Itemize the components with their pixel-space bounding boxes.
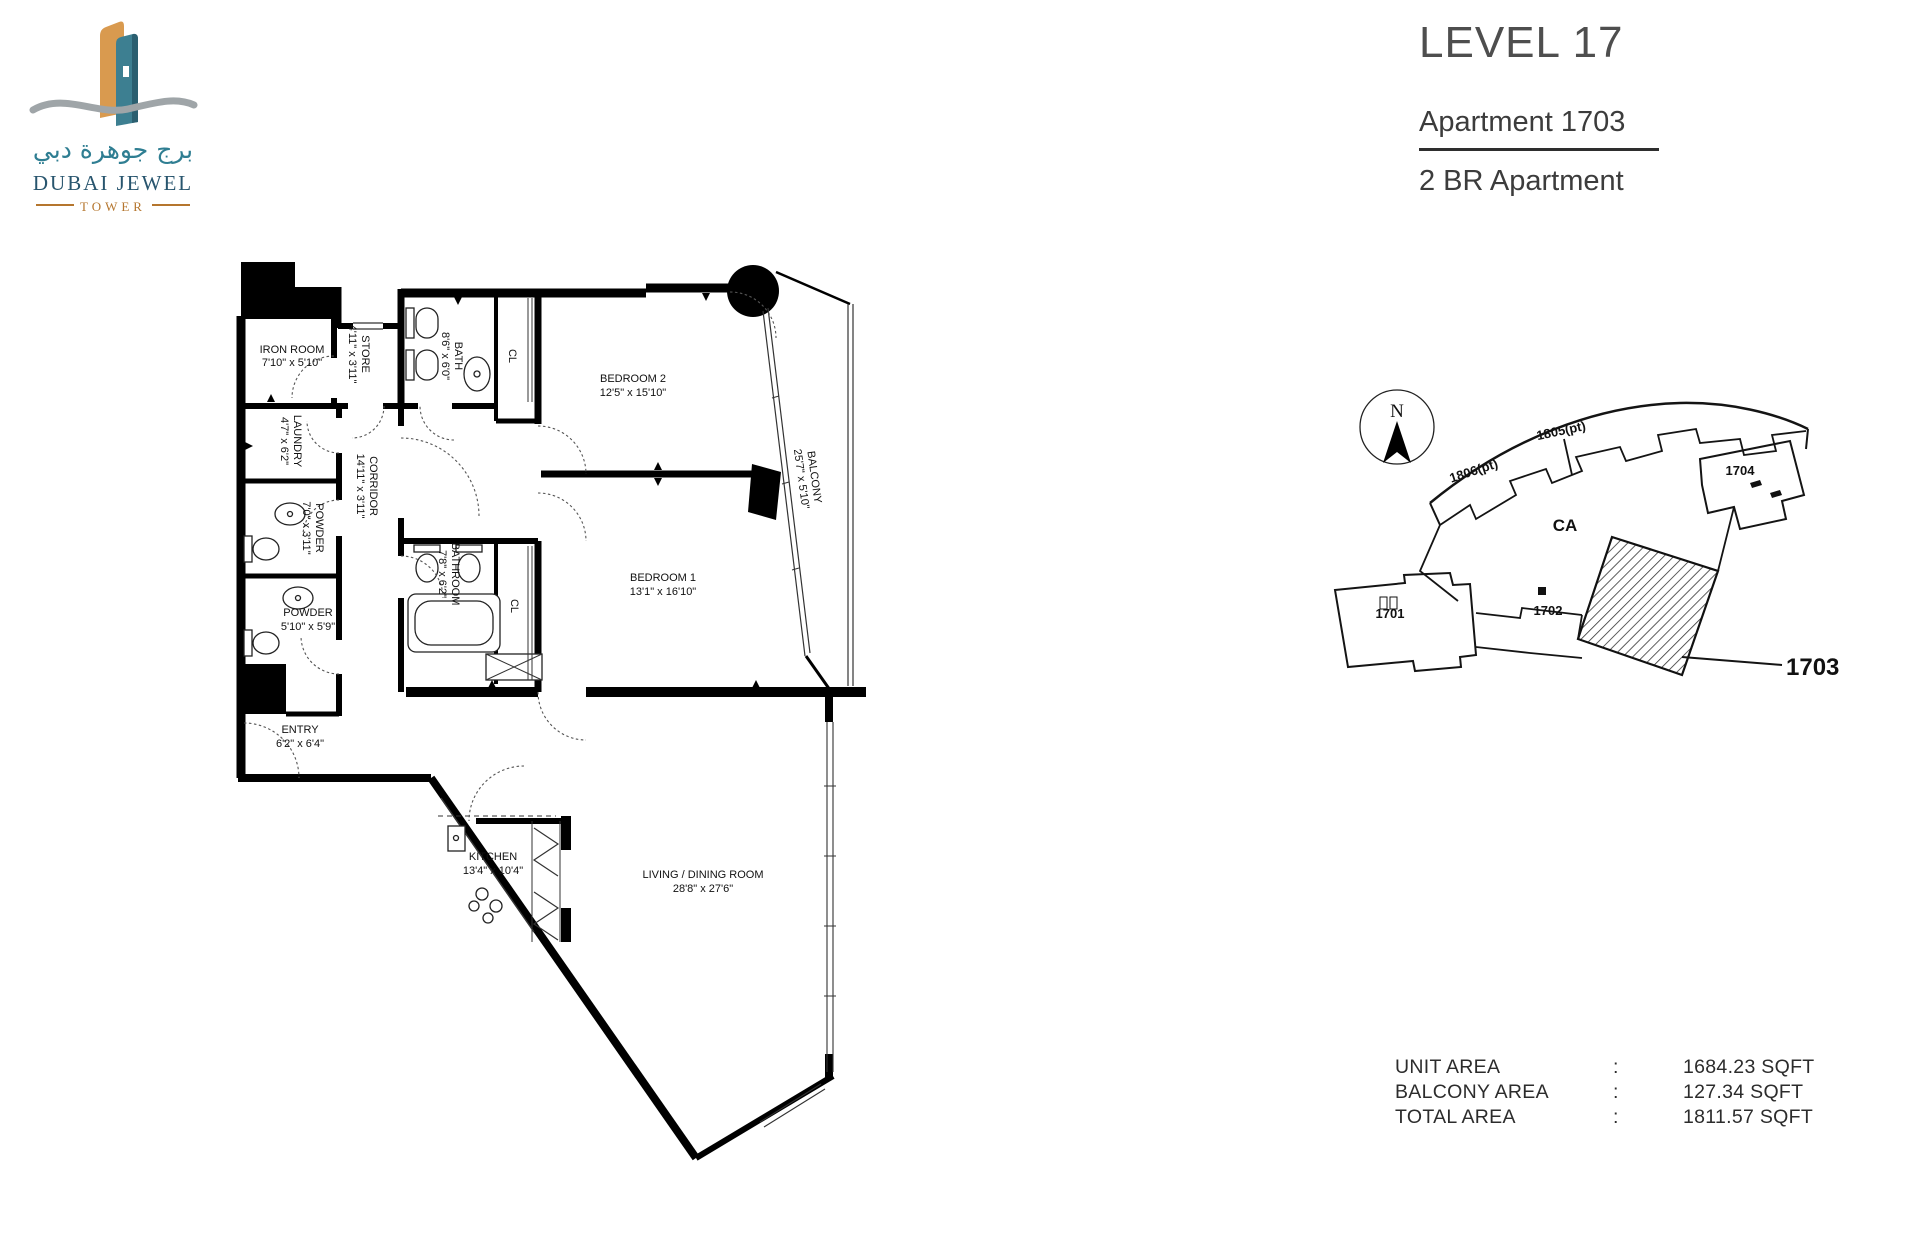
unit-area-row: UNIT AREA : 1684.23 SQFT — [1395, 1055, 1865, 1080]
room-dims-bedroom2: 12'5" x 15'10" — [600, 387, 667, 399]
room-dims-living: 28'8" x 27'6" — [673, 883, 733, 895]
room-label-closet-b: CL — [508, 599, 520, 613]
logo-arabic-text: برج جوهرة دبي — [33, 135, 193, 165]
title-block: LEVEL 17 Apartment 1703 2 BR Apartment — [1419, 18, 1839, 198]
plan-windows — [353, 304, 853, 1127]
unit-label-1806: 1806(pt) — [1448, 456, 1500, 486]
room-label-bedroom2: BEDROOM 2 — [600, 373, 666, 385]
svg-text:8'6" x 6'0": 8'6" x 6'0" — [439, 332, 451, 380]
north-compass-icon: N — [1360, 390, 1434, 464]
room-dims-bedroom1: 13'1" x 16'10" — [630, 586, 697, 598]
room-dims-powder-lower: 5'10" x 5'9" — [281, 621, 335, 633]
common-area-label: CA — [1553, 516, 1578, 535]
logo-subtitle-text: TOWER — [80, 199, 146, 214]
room-label-bathroom: BATHROOM 7'8" x 6'2" — [436, 543, 461, 606]
svg-text:14'11" x 3'11": 14'11" x 3'11" — [354, 454, 366, 519]
room-dims-entry: 6'2" x 6'4" — [276, 738, 324, 750]
column-circle — [727, 265, 779, 317]
svg-text:7'0" x 3'11": 7'0" x 3'11" — [300, 501, 312, 554]
svg-text:BATH: BATH — [452, 342, 464, 371]
dubai-jewel-tower-logo: برج جوهرة دبي DUBAI JEWEL TOWER — [28, 14, 203, 219]
plan-walls — [238, 272, 866, 1158]
total-area-value: 1811.57 SQFT — [1683, 1105, 1865, 1130]
room-label-powder-upper: POWDER 7'0" x 3'11" — [300, 501, 325, 554]
level-title: LEVEL 17 — [1419, 18, 1839, 68]
svg-text:STORE: STORE — [359, 335, 371, 373]
balcony-area-row: BALCONY AREA : 127.34 SQFT — [1395, 1080, 1865, 1105]
svg-text:4'7" x 6'2": 4'7" x 6'2" — [278, 417, 290, 465]
room-label-balcony: BALCONY 25'7" x 5'10" — [791, 446, 824, 509]
highlighted-unit-callout: 1703 — [1786, 654, 1839, 681]
north-label: N — [1390, 401, 1404, 422]
svg-text:BATHROOM: BATHROOM — [449, 543, 461, 606]
unit-label-1704: 1704 — [1726, 463, 1756, 478]
svg-text:CL: CL — [508, 599, 520, 613]
apartment-type: 2 BR Apartment — [1419, 165, 1839, 198]
room-label-bath: BATH 8'6" x 6'0" — [439, 332, 464, 380]
svg-text:CL: CL — [506, 349, 518, 363]
unit-area-label: UNIT AREA — [1395, 1055, 1613, 1080]
svg-text:POWDER: POWDER — [313, 503, 325, 553]
balcony-area-label: BALCONY AREA — [1395, 1080, 1613, 1105]
apartment-floor-plan: IRON ROOM 7'10" x 5'10" STORE 4'11" x 3'… — [236, 256, 878, 1168]
total-area-colon: : — [1613, 1105, 1683, 1130]
room-label-iron: IRON ROOM — [260, 344, 325, 356]
room-label-laundry: LAUNDRY 4'7" x 6'2" — [278, 415, 303, 468]
room-label-corridor: CORRIDOR 14'11" x 3'11" — [354, 454, 379, 519]
room-label-living: LIVING / DINING ROOM — [642, 869, 763, 881]
room-label-closet-a: CL — [506, 349, 518, 363]
balcony-area-colon: : — [1613, 1080, 1683, 1105]
room-label-bedroom1: BEDROOM 1 — [630, 572, 696, 584]
plan-room-labels: IRON ROOM 7'10" x 5'10" STORE 4'11" x 3'… — [260, 325, 824, 895]
svg-text:LAUNDRY: LAUNDRY — [291, 415, 303, 468]
unit-label-1701: 1701 — [1376, 606, 1405, 621]
floorplan-sheet: برج جوهرة دبي DUBAI JEWEL TOWER LEVEL 17… — [0, 0, 1920, 1243]
room-label-kitchen: KITCHEN — [469, 851, 517, 863]
unit-1703-highlight — [1578, 537, 1718, 675]
unit-label-1805: 1805(pt) — [1535, 418, 1587, 443]
balcony-area-value: 127.34 SQFT — [1683, 1080, 1865, 1105]
room-dims-kitchen: 13'4" x 10'4" — [463, 865, 523, 877]
svg-text:CORRIDOR: CORRIDOR — [367, 456, 379, 516]
total-area-row: TOTAL AREA : 1811.57 SQFT — [1395, 1105, 1865, 1130]
unit-label-1702: 1702 — [1534, 603, 1563, 618]
svg-text:4'11" x 3'11": 4'11" x 3'11" — [346, 325, 358, 384]
room-label-entry: ENTRY — [281, 724, 319, 736]
area-summary: UNIT AREA : 1684.23 SQFT BALCONY AREA : … — [1395, 1055, 1865, 1130]
room-label-store: STORE 4'11" x 3'11" — [346, 325, 371, 384]
unit-area-colon: : — [1613, 1055, 1683, 1080]
keyplan-building-outline — [1335, 403, 1808, 675]
unit-area-value: 1684.23 SQFT — [1683, 1055, 1865, 1080]
logo-title-text: DUBAI JEWEL — [33, 171, 193, 195]
svg-text:7'8" x 6'2": 7'8" x 6'2" — [436, 550, 448, 598]
room-label-powder-lower: POWDER — [283, 607, 333, 619]
total-area-label: TOTAL AREA — [1395, 1105, 1613, 1130]
apartment-title: Apartment 1703 — [1419, 106, 1659, 151]
key-plan: N — [1320, 375, 1880, 735]
room-dims-iron: 7'10" x 5'10" — [262, 357, 322, 369]
